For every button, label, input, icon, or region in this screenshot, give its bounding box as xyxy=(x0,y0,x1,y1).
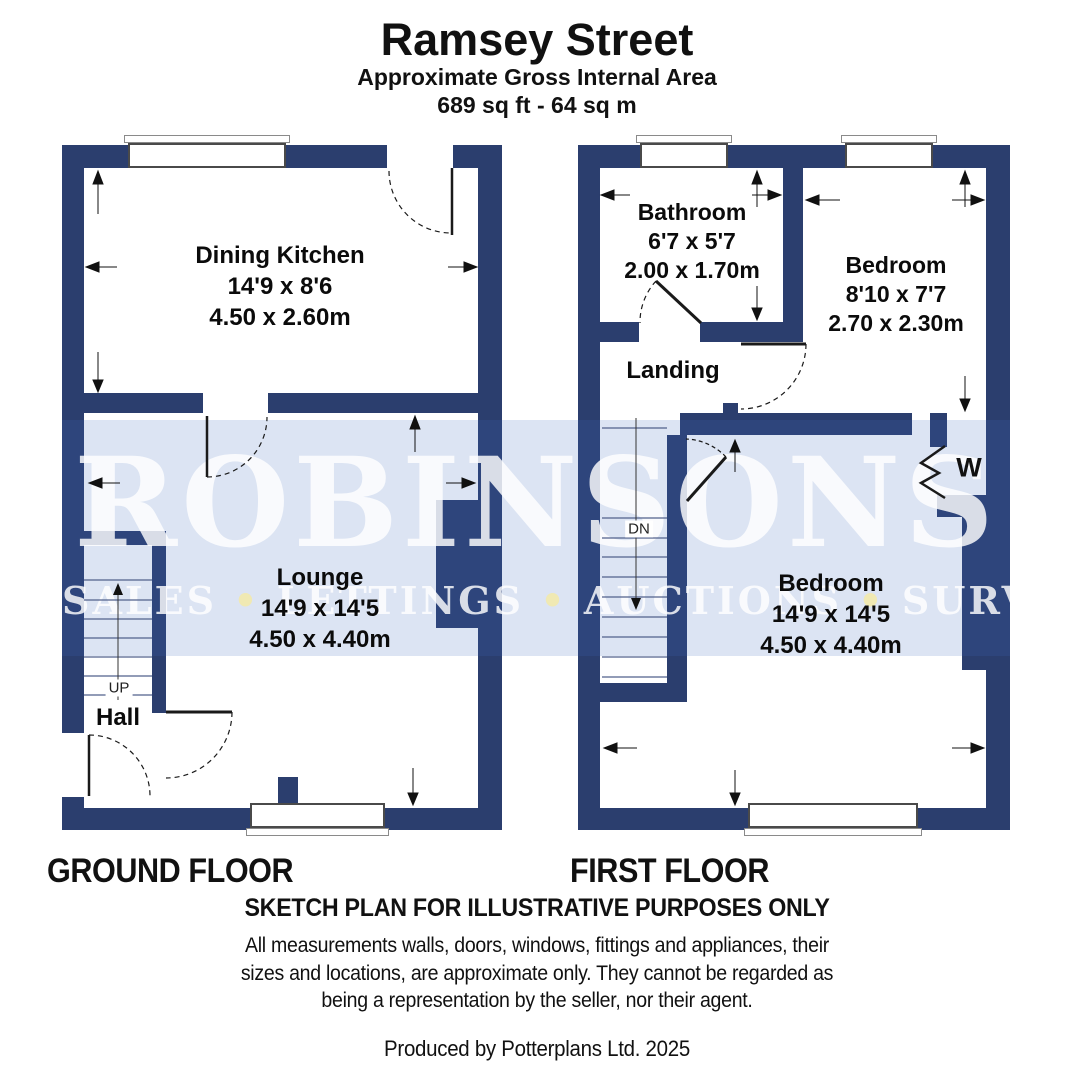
disclaimer-line-2: sizes and locations, are approximate onl… xyxy=(38,960,1037,988)
ff-bedroom-window-sill xyxy=(841,135,937,143)
page-subtitle: Approximate Gross Internal Area xyxy=(0,64,1074,91)
ground-floor-caption: GROUND FLOOR xyxy=(47,852,293,891)
disclaimer-title: SKETCH PLAN FOR ILLUSTRATIVE PURPOSES ON… xyxy=(38,894,1037,923)
room-dims-imperial: 8'10 x 7'7 xyxy=(828,280,964,309)
room-name: Dining Kitchen xyxy=(195,240,364,271)
room-label-lounge: Lounge 14'9 x 14'5 4.50 x 4.40m xyxy=(249,562,390,655)
ff-bottom-window-sill xyxy=(744,828,922,836)
room-name: Lounge xyxy=(249,562,390,593)
watermark-brand: ROBINSONS xyxy=(62,442,1010,566)
first-floor-caption: FIRST FLOOR xyxy=(570,852,769,891)
gf-top-window-sill xyxy=(124,135,290,143)
ff-bathroom-wall-right xyxy=(700,322,803,342)
ff-bathroom-door-icon xyxy=(640,281,701,323)
page-area: 689 sq ft - 64 sq m xyxy=(0,92,1074,119)
room-name: Bedroom xyxy=(760,568,901,599)
ff-door-stub xyxy=(723,403,738,413)
disclaimer-line-3: being a representation by the seller, no… xyxy=(38,987,1037,1015)
room-dims-metric: 4.50 x 4.40m xyxy=(760,630,901,661)
room-label-bathroom: Bathroom 6'7 x 5'7 2.00 x 1.70m xyxy=(624,198,760,285)
gf-divider-wall-right xyxy=(268,393,478,413)
disclaimer-body: All measurements walls, doors, windows, … xyxy=(38,932,1037,1015)
ff-bathroom-divider-wall xyxy=(783,145,803,342)
gf-hall-door-icon xyxy=(166,712,232,778)
page-title: Ramsey Street xyxy=(0,14,1074,66)
ff-bedroom-door-icon xyxy=(741,344,806,409)
room-dims-metric: 4.50 x 4.40m xyxy=(249,624,390,655)
floorplan-page: Ramsey Street Approximate Gross Internal… xyxy=(0,0,1074,1080)
ff-bottom-window xyxy=(748,803,918,828)
gf-stairs-up-label: UP xyxy=(106,680,133,697)
room-dims-metric: 4.50 x 2.60m xyxy=(195,302,364,333)
gf-top-window xyxy=(128,143,286,168)
room-dims-imperial: 14'9 x 14'5 xyxy=(760,599,901,630)
room-label-bedroom-main: Bedroom 14'9 x 14'5 4.50 x 4.40m xyxy=(760,568,901,661)
gf-front-door-icon xyxy=(89,735,150,796)
room-label-dining-kitchen: Dining Kitchen 14'9 x 8'6 4.50 x 2.60m xyxy=(195,240,364,333)
room-label-landing: Landing xyxy=(626,355,719,386)
room-dims-imperial: 14'9 x 8'6 xyxy=(195,271,364,302)
room-name: Bathroom xyxy=(624,198,760,227)
room-name: Bedroom xyxy=(828,251,964,280)
gf-back-door-icon xyxy=(389,168,452,235)
ff-bathroom-window xyxy=(640,143,728,168)
room-name: Hall xyxy=(96,702,140,733)
ff-bathroom-window-sill xyxy=(636,135,732,143)
gf-divider-wall-left xyxy=(62,393,203,413)
disclaimer-line-1: All measurements walls, doors, windows, … xyxy=(38,932,1037,960)
ff-stair-bottom-wall xyxy=(600,683,687,702)
room-dims-metric: 2.70 x 2.30m xyxy=(828,309,964,338)
room-name: Landing xyxy=(626,355,719,386)
room-dims-imperial: 14'9 x 14'5 xyxy=(249,593,390,624)
ff-bathroom-wall-left xyxy=(600,322,639,342)
produced-by: Produced by Potterplans Ltd. 2025 xyxy=(38,1036,1037,1062)
room-label-hall: Hall xyxy=(96,702,140,733)
ff-stairs-dn-label: DN xyxy=(625,521,653,538)
gf-bottom-window-sill xyxy=(246,828,389,836)
room-label-bedroom-front: Bedroom 8'10 x 7'7 2.70 x 2.30m xyxy=(828,251,964,338)
room-dims-imperial: 6'7 x 5'7 xyxy=(624,227,760,256)
wardrobe-label: W xyxy=(956,453,981,484)
gf-bottom-window xyxy=(250,803,385,828)
room-dims-metric: 2.00 x 1.70m xyxy=(624,256,760,285)
ff-bedroom-window xyxy=(845,143,933,168)
